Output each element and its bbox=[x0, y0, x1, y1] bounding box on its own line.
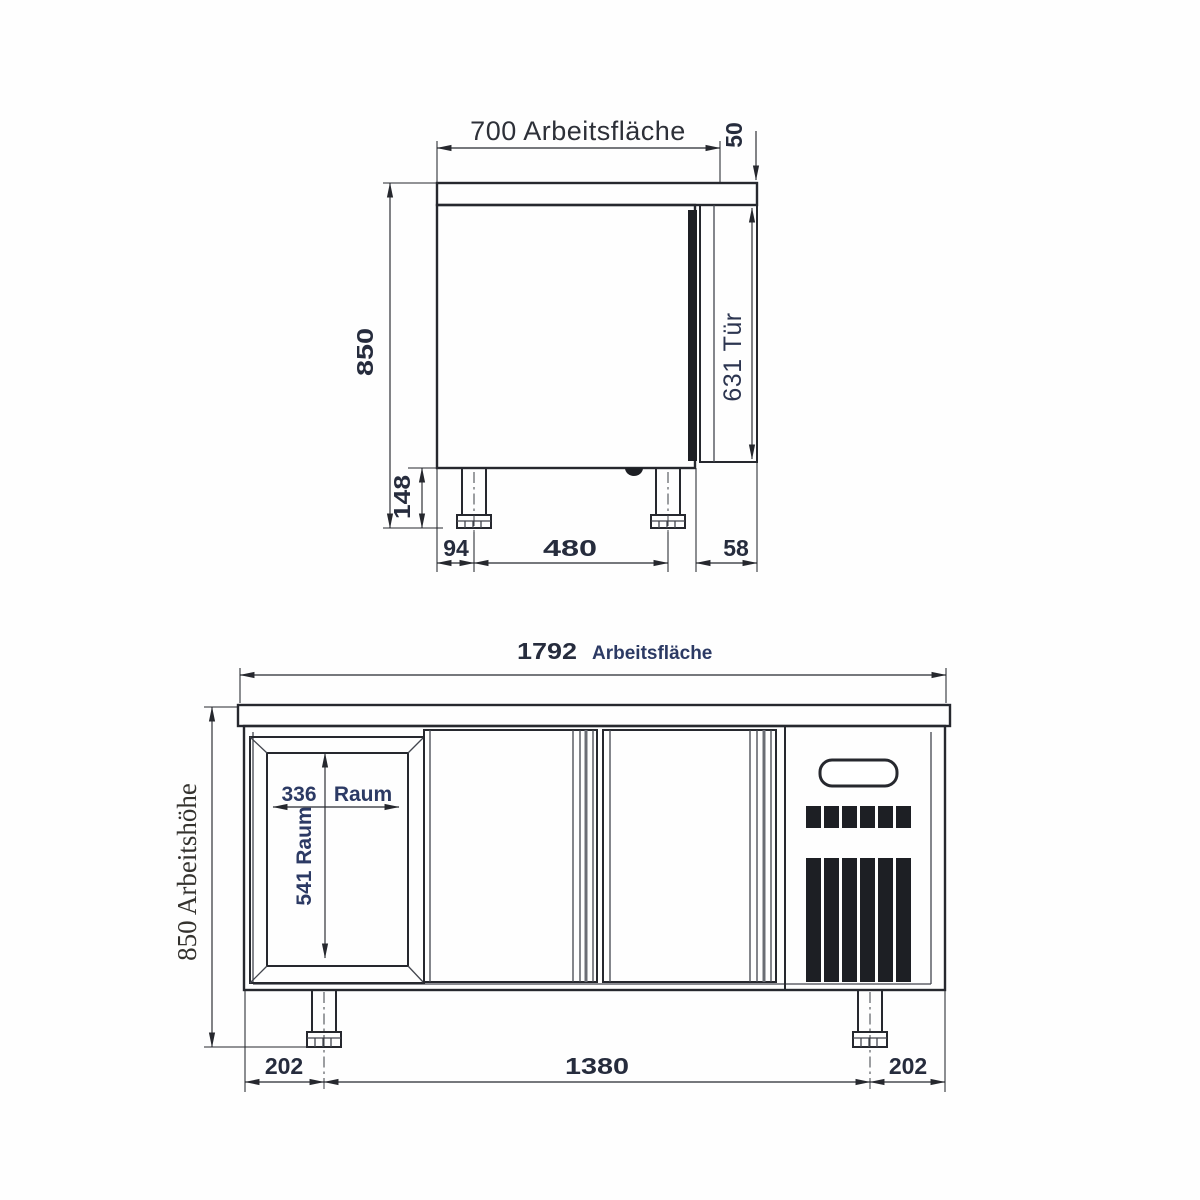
dim-label-foot-height: 148 bbox=[389, 475, 415, 519]
drawing-canvas: 700 Arbeitsfläche 50 850 148 631 Tür bbox=[0, 0, 1200, 1200]
front-foot-right bbox=[853, 990, 887, 1090]
technical-drawing-page: 700 Arbeitsfläche 50 850 148 631 Tür bbox=[0, 0, 1200, 1200]
front-worktop bbox=[238, 705, 950, 726]
front-view: 1792 Arbeitsfläche 850 Arbeitshöhe 336 R… bbox=[172, 638, 950, 1092]
front-door-1 bbox=[250, 737, 424, 983]
dim-label-foot-spacing: 480 bbox=[543, 535, 597, 561]
dim-label-front-width-value: 1792 bbox=[517, 638, 577, 664]
side-drain-bump bbox=[625, 468, 643, 476]
side-door-gasket bbox=[688, 210, 697, 461]
dim-label-foot-offset-back: 94 bbox=[443, 535, 469, 561]
dim-label-compartment-width-word: Raum bbox=[334, 783, 392, 806]
side-body bbox=[437, 205, 695, 468]
vent-squares bbox=[806, 806, 911, 828]
dim-label-door-offset-front: 58 bbox=[723, 535, 749, 561]
vent-bars bbox=[806, 858, 911, 982]
dim-label-front-width-word: Arbeitsfläche bbox=[592, 643, 712, 664]
front-foot-left bbox=[307, 990, 341, 1090]
compressor-handle-slot bbox=[820, 760, 897, 786]
side-view: 700 Arbeitsfläche 50 850 148 631 Tür bbox=[352, 116, 757, 572]
dim-label-margin-right: 202 bbox=[889, 1053, 927, 1079]
dim-label-compartment-height: 541 Raum bbox=[293, 806, 316, 905]
front-compressor-section bbox=[785, 726, 911, 990]
dim-label-worktop-width: 700 Arbeitsfläche bbox=[470, 116, 686, 146]
side-worktop bbox=[437, 183, 757, 205]
front-door-3 bbox=[603, 730, 776, 982]
dim-label-margin-left: 202 bbox=[265, 1053, 303, 1079]
dim-label-foot-spacing-front: 1380 bbox=[565, 1053, 629, 1079]
dim-label-door-height: 631 Tür bbox=[719, 312, 747, 401]
dim-label-overall-height: 850 bbox=[352, 328, 378, 376]
dim-label-working-height: 850 Arbeitshöhe bbox=[172, 783, 202, 961]
front-door-2 bbox=[424, 730, 597, 982]
dim-label-compartment-width-value: 336 bbox=[281, 783, 316, 806]
dim-label-worktop-thickness: 50 bbox=[721, 122, 747, 148]
